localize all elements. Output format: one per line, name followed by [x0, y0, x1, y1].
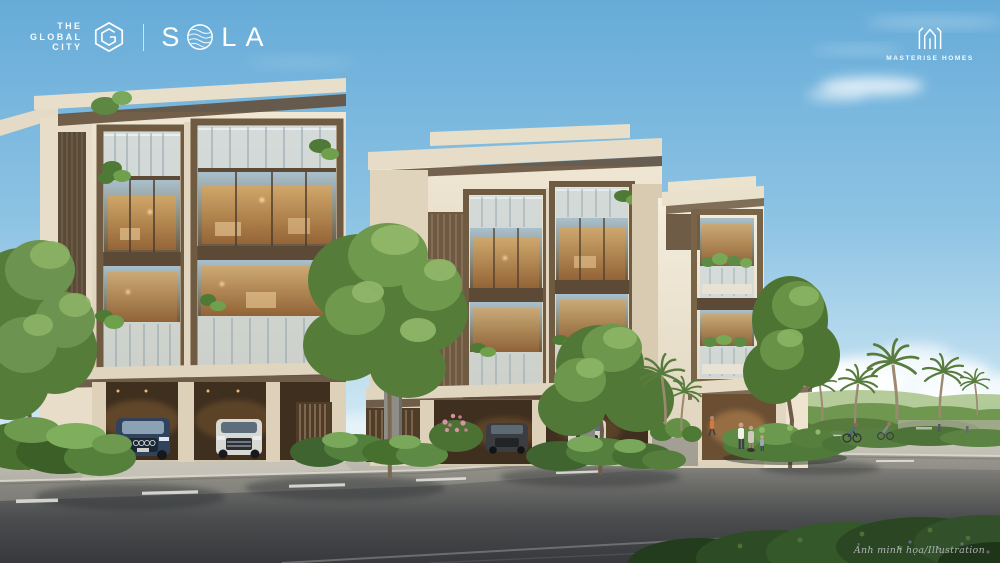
caption-illustration: Ảnh minh họa/Illustration — [854, 545, 985, 556]
architectural-rendering — [0, 0, 1000, 563]
child — [760, 435, 764, 451]
bench — [916, 427, 932, 430]
car-white-suv — [216, 419, 262, 459]
dog — [747, 448, 755, 452]
car-dark — [486, 423, 528, 454]
hero-image: THE GLOBAL CITY S LA — [0, 0, 1000, 563]
bay-a — [466, 192, 546, 396]
bay-a — [95, 128, 184, 374]
